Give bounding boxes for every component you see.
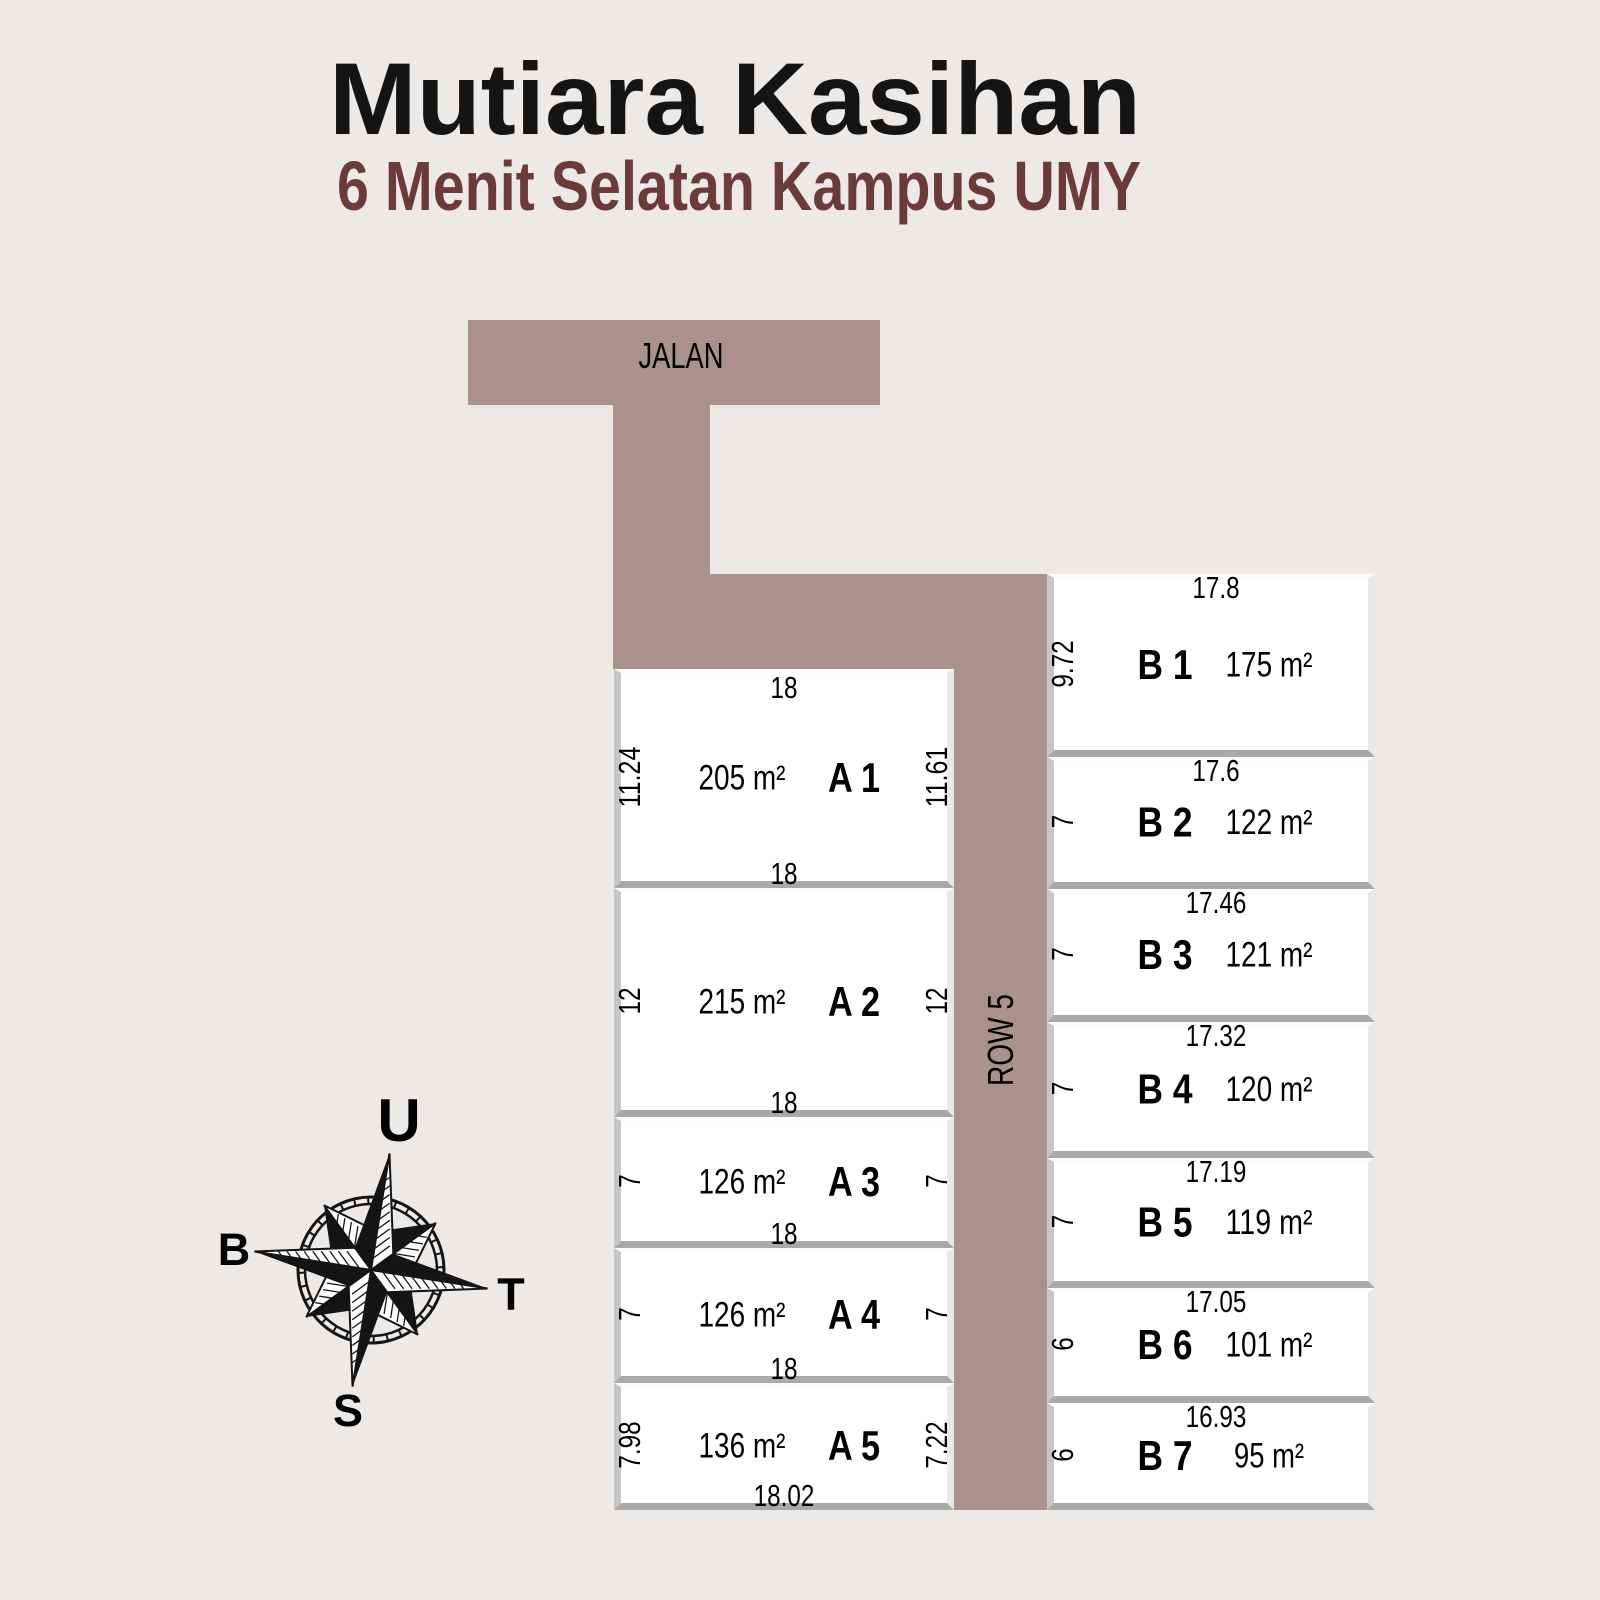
svg-text:215 m²: 215 m² (699, 983, 786, 1022)
svg-text:17.19: 17.19 (1186, 1154, 1247, 1189)
svg-text:B 7: B 7 (1138, 1432, 1193, 1479)
svg-text:18: 18 (771, 1085, 798, 1120)
svg-text:17.32: 17.32 (1186, 1018, 1247, 1053)
svg-text:6: 6 (1045, 1448, 1080, 1462)
svg-text:119 m²: 119 m² (1226, 1203, 1313, 1242)
svg-text:B 3: B 3 (1138, 931, 1193, 978)
svg-text:136 m²: 136 m² (699, 1427, 786, 1466)
svg-text:ROW 5: ROW 5 (980, 994, 1021, 1086)
svg-text:101 m²: 101 m² (1226, 1326, 1313, 1365)
svg-text:18: 18 (771, 1216, 798, 1251)
svg-text:7: 7 (919, 1307, 954, 1321)
svg-text:18.02: 18.02 (754, 1478, 815, 1513)
svg-text:Mutiara Kasihan: Mutiara Kasihan (329, 42, 1141, 156)
svg-text:JALAN: JALAN (639, 335, 724, 376)
svg-text:6 Menit Selatan Kampus UMY: 6 Menit Selatan Kampus UMY (337, 147, 1141, 225)
svg-text:7: 7 (1045, 947, 1080, 961)
svg-text:17.6: 17.6 (1192, 753, 1239, 788)
svg-text:A 1: A 1 (828, 754, 880, 801)
svg-text:16.93: 16.93 (1186, 1399, 1247, 1434)
svg-text:B 6: B 6 (1138, 1321, 1193, 1368)
svg-text:B: B (218, 1224, 251, 1275)
svg-text:7: 7 (919, 1174, 954, 1188)
svg-text:7: 7 (1045, 1215, 1080, 1229)
svg-text:122 m²: 122 m² (1226, 803, 1313, 842)
svg-text:B 4: B 4 (1138, 1066, 1194, 1113)
svg-text:7: 7 (1045, 1082, 1080, 1096)
svg-text:12: 12 (612, 988, 647, 1015)
svg-text:B 1: B 1 (1138, 641, 1193, 688)
svg-text:7: 7 (612, 1174, 647, 1188)
svg-text:95 m²: 95 m² (1234, 1437, 1304, 1476)
svg-text:7: 7 (1045, 815, 1080, 829)
svg-text:11.61: 11.61 (919, 747, 954, 808)
svg-text:7.22: 7.22 (919, 1421, 954, 1468)
svg-text:18: 18 (771, 1351, 798, 1386)
svg-text:175 m²: 175 m² (1226, 646, 1313, 685)
svg-text:A 4: A 4 (828, 1291, 881, 1338)
svg-text:9.72: 9.72 (1045, 640, 1080, 687)
svg-text:B 2: B 2 (1138, 799, 1193, 846)
svg-text:A 3: A 3 (828, 1158, 880, 1205)
svg-text:17.46: 17.46 (1186, 885, 1247, 920)
svg-text:126 m²: 126 m² (699, 1163, 786, 1202)
svg-text:121 m²: 121 m² (1226, 936, 1313, 975)
svg-text:6: 6 (1045, 1337, 1080, 1351)
svg-text:120 m²: 120 m² (1226, 1070, 1313, 1109)
svg-text:T: T (497, 1269, 525, 1320)
svg-text:B 5: B 5 (1138, 1199, 1193, 1246)
svg-text:A 5: A 5 (828, 1422, 880, 1469)
svg-text:12: 12 (919, 988, 954, 1015)
svg-text:11.24: 11.24 (612, 747, 647, 808)
svg-text:A 2: A 2 (828, 978, 880, 1025)
svg-text:U: U (377, 1087, 420, 1154)
svg-text:18: 18 (771, 856, 798, 891)
svg-text:18: 18 (771, 670, 798, 705)
svg-text:126 m²: 126 m² (699, 1296, 786, 1335)
svg-text:7.98: 7.98 (612, 1421, 647, 1468)
svg-text:17.05: 17.05 (1186, 1284, 1247, 1319)
svg-text:17.8: 17.8 (1192, 570, 1239, 605)
svg-text:7: 7 (612, 1307, 647, 1321)
svg-text:205 m²: 205 m² (699, 759, 786, 798)
svg-text:S: S (333, 1385, 363, 1436)
